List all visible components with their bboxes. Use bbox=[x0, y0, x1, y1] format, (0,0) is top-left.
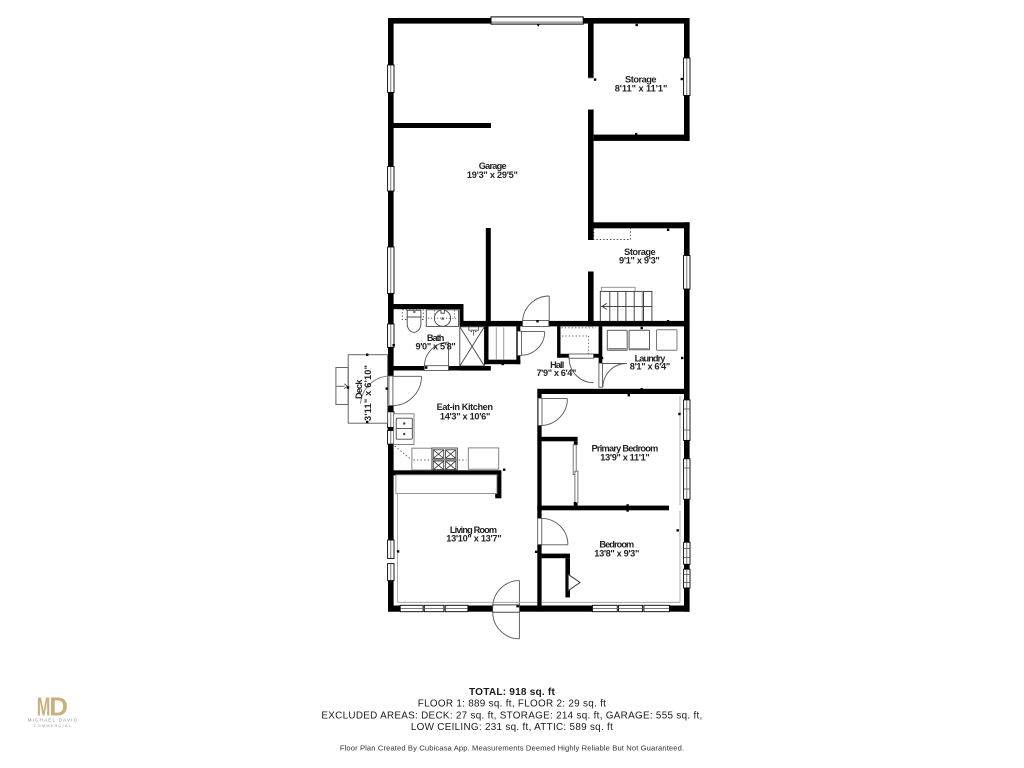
svg-text:Floor Plan Created By Cubicasa: Floor Plan Created By Cubicasa App. Meas… bbox=[340, 743, 684, 752]
svg-text:13'9" x 11'1": 13'9" x 11'1" bbox=[600, 452, 649, 462]
svg-text:Eat-in Kitchen: Eat-in Kitchen bbox=[437, 402, 494, 412]
svg-text:D: D bbox=[49, 694, 68, 722]
svg-text:EXCLUDED AREAS: DECK: 27 sq. f: EXCLUDED AREAS: DECK: 27 sq. ft, STORAGE… bbox=[321, 710, 702, 721]
svg-text:13'10" x 13'7": 13'10" x 13'7" bbox=[446, 533, 501, 543]
svg-text:COMMERCIAL: COMMERCIAL bbox=[34, 723, 72, 728]
svg-text:14'3" x 10'6": 14'3" x 10'6" bbox=[440, 412, 490, 422]
svg-text:13'8" x 9'3": 13'8" x 9'3" bbox=[594, 548, 639, 558]
svg-text:9'0" x 5'8": 9'0" x 5'8" bbox=[415, 342, 455, 352]
svg-text:8'1" x 6'4": 8'1" x 6'4" bbox=[630, 362, 670, 372]
svg-text:3'11" x 6'10": 3'11" x 6'10" bbox=[363, 365, 373, 421]
svg-text:8'11" x 11'1": 8'11" x 11'1" bbox=[615, 83, 668, 93]
svg-text:7'9" x 6'4": 7'9" x 6'4" bbox=[536, 368, 576, 378]
svg-text:TOTAL: 918 sq. ft: TOTAL: 918 sq. ft bbox=[469, 687, 555, 698]
svg-text:LOW CEILING: 231 sq. ft, ATTIC: LOW CEILING: 231 sq. ft, ATTIC: 589 sq. … bbox=[411, 722, 613, 733]
svg-text:19'3" x 29'5": 19'3" x 29'5" bbox=[467, 170, 518, 180]
svg-text:9'1" x 9'3": 9'1" x 9'3" bbox=[619, 255, 660, 265]
svg-text:FLOOR 1: 889 sq. ft, FLOOR 2:: FLOOR 1: 889 sq. ft, FLOOR 2: 29 sq. ft bbox=[418, 699, 606, 710]
